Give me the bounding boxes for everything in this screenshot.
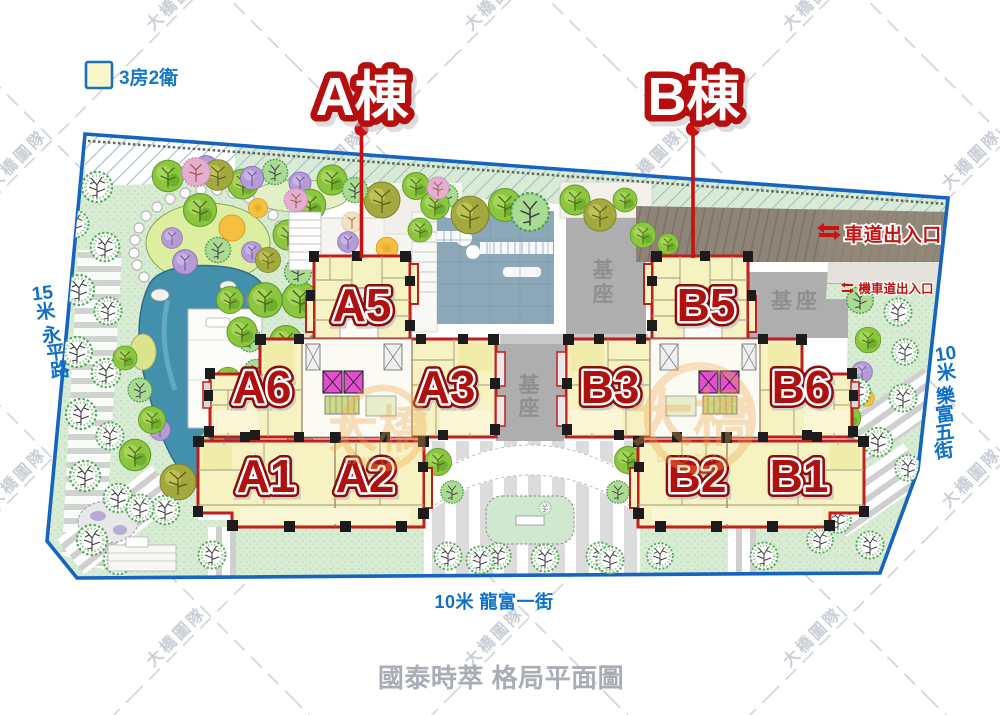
svg-text:B5: B5 — [677, 279, 736, 331]
svg-text:A棟: A棟 — [316, 67, 410, 127]
svg-text:路: 路 — [49, 358, 72, 383]
svg-text:A6: A6 — [233, 361, 292, 413]
svg-text:國泰時萃 格局平面圖: 國泰時萃 格局平面圖 — [378, 663, 624, 693]
svg-text:3房2衛: 3房2衛 — [119, 66, 178, 89]
svg-text:座: 座 — [593, 282, 614, 306]
svg-text:座: 座 — [519, 396, 540, 420]
svg-text:基: 基 — [519, 374, 541, 397]
svg-text:B1: B1 — [770, 450, 829, 502]
svg-text:米: 米 — [35, 299, 58, 324]
svg-text:10米 龍富一街: 10米 龍富一街 — [434, 591, 553, 612]
svg-text:基座: 基座 — [771, 289, 821, 313]
svg-text:B6: B6 — [772, 361, 831, 413]
svg-text:DAJU TEAM: DAJU TEAM — [344, 456, 411, 467]
svg-text:A5: A5 — [333, 279, 392, 331]
svg-text:街: 街 — [932, 438, 955, 464]
svg-text:車道出入口: 車道出入口 — [844, 223, 942, 246]
svg-text:機車道出入口: 機車道出入口 — [858, 281, 933, 296]
svg-text:基: 基 — [593, 259, 615, 282]
svg-text:大橋: 大橋 — [328, 402, 428, 458]
svg-text:DAJU TEAM: DAJU TEAM — [656, 453, 729, 465]
svg-text:大橋: 大橋 — [631, 385, 756, 454]
svg-text:A1: A1 — [237, 450, 296, 502]
svg-text:B棟: B棟 — [648, 67, 742, 127]
